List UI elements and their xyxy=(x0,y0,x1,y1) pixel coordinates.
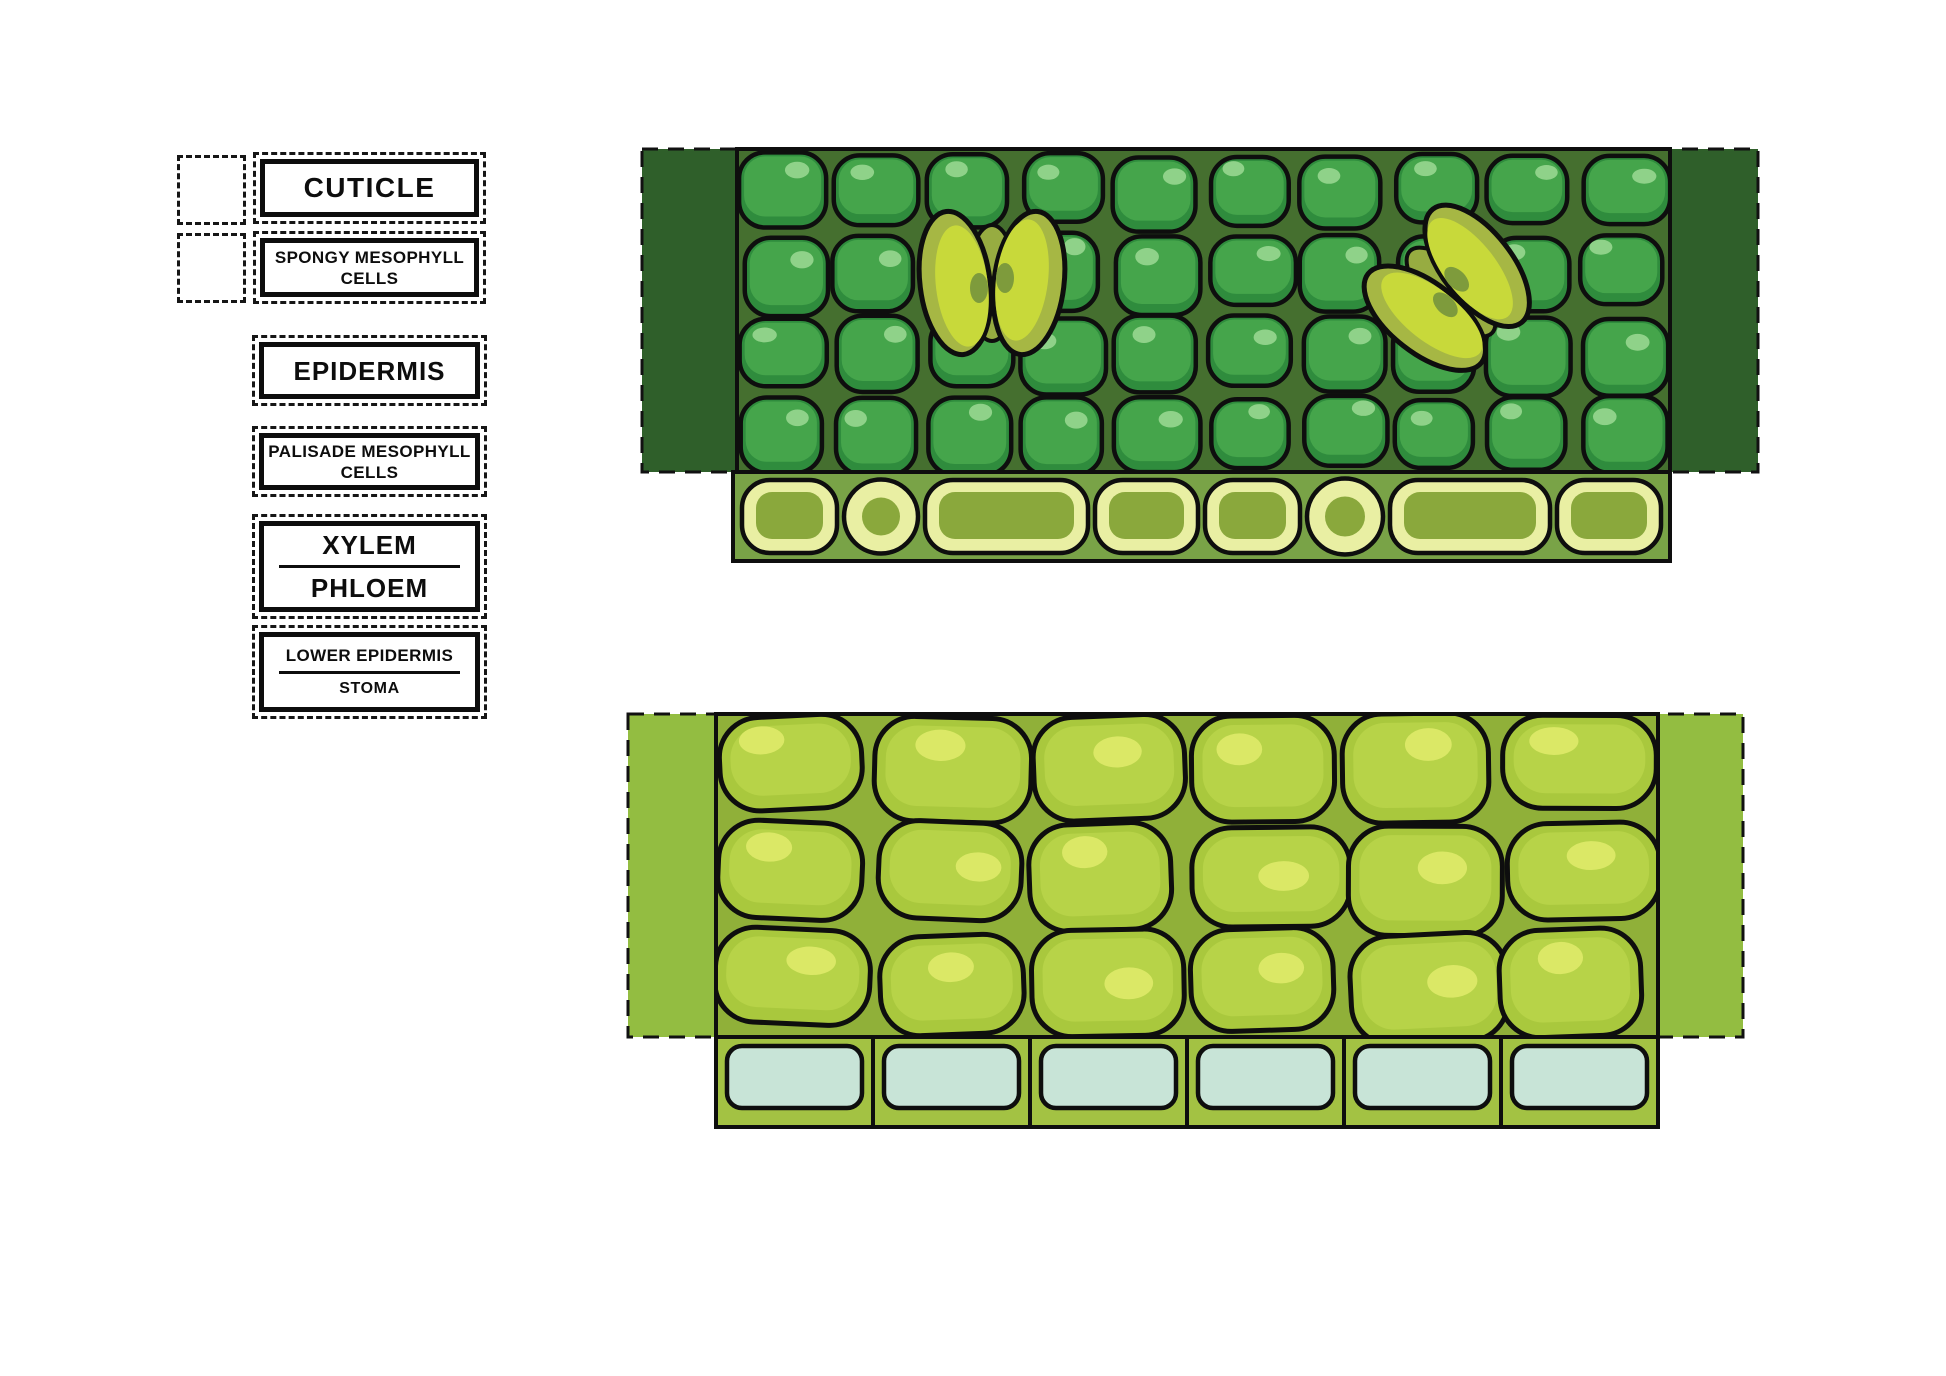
label-palisade-mesophyll: PALISADE MESOPHYLL CELLS xyxy=(252,426,487,497)
lower-epidermis-cell xyxy=(884,1046,1019,1108)
spongy-mesophyll-cell xyxy=(745,238,828,316)
palisade-mesophyll-cell xyxy=(1191,715,1335,823)
palisade-mesophyll-cell xyxy=(1031,928,1185,1037)
spongy-mesophyll-cell xyxy=(1583,396,1667,473)
label-spongy-mesophyll: SPONGY MESOPHYLL CELLS xyxy=(253,231,486,304)
palisade-mesophyll-cell xyxy=(716,818,864,922)
spongy-mesophyll-cell xyxy=(836,398,916,475)
spongy-mesophyll-cell xyxy=(1211,399,1288,468)
epidermis-cell xyxy=(742,480,837,553)
label-xylem-phloem-box: XYLEM PHLOEM xyxy=(259,521,480,612)
spongy-mesophyll-cell xyxy=(832,236,913,311)
palisade-mesophyll-cell xyxy=(1191,827,1350,928)
label-lower-epidermis-text: LOWER EPIDERMIS xyxy=(286,645,454,666)
spongy-mesophyll-cell xyxy=(1114,397,1201,472)
spongy-mesophyll-cell xyxy=(1299,157,1380,229)
spongy-mesophyll-cell xyxy=(1210,236,1296,304)
label-divider xyxy=(279,565,460,568)
spongy-mesophyll-cell xyxy=(1208,316,1291,386)
answer-tab-box-1 xyxy=(177,155,246,225)
label-spongy-line1: SPONGY MESOPHYLL xyxy=(275,247,464,268)
label-divider xyxy=(279,671,460,674)
spongy-mesophyll-cell xyxy=(1583,319,1668,396)
lower-epidermis-cell xyxy=(1512,1046,1647,1108)
palisade-mesophyll-cell xyxy=(877,819,1024,922)
label-lower-epidermis-stoma: LOWER EPIDERMIS STOMA xyxy=(252,625,487,719)
palisade-mesophyll-cell xyxy=(1027,821,1173,933)
label-epidermis-box: EPIDERMIS xyxy=(259,342,480,399)
lower-epidermis-cell xyxy=(1198,1046,1333,1108)
palisade-mesophyll-cell xyxy=(1189,926,1335,1032)
lower-leaf-cross-section-illustration xyxy=(626,712,1745,1129)
worksheet-page: CUTICLE SPONGY MESOPHYLL CELLS EPIDERMIS… xyxy=(0,0,1946,1376)
spongy-mesophyll-cell xyxy=(741,397,822,472)
epidermis-cell xyxy=(1205,480,1300,553)
palisade-mesophyll-cell xyxy=(1507,821,1662,920)
palisade-mesophyll-cell xyxy=(1348,826,1502,936)
label-cuticle-text: CUTICLE xyxy=(304,173,436,203)
epidermis-cell xyxy=(1307,479,1383,555)
answer-tab-box-2 xyxy=(177,233,246,303)
epidermis-cell xyxy=(1390,480,1550,553)
label-palisade-line1: PALISADE MESOPHYLL xyxy=(268,441,470,462)
spongy-mesophyll-cell xyxy=(1487,397,1565,470)
label-xylem-text: XYLEM xyxy=(322,530,417,560)
label-stoma-text: STOMA xyxy=(339,679,399,699)
palisade-mesophyll-cell xyxy=(873,715,1032,824)
label-epidermis: EPIDERMIS xyxy=(252,335,487,406)
spongy-mesophyll-cell xyxy=(837,316,918,392)
spongy-mesophyll-cell xyxy=(1021,397,1102,475)
label-epidermis-text: EPIDERMIS xyxy=(293,356,445,386)
lower-epidermis-cell xyxy=(727,1046,862,1108)
label-xylem-phloem: XYLEM PHLOEM xyxy=(252,514,487,619)
label-lower-epidermis-stoma-box: LOWER EPIDERMIS STOMA xyxy=(259,632,480,712)
label-cuticle: CUTICLE xyxy=(253,152,486,224)
spongy-mesophyll-cell xyxy=(1487,156,1568,223)
spongy-mesophyll-cell xyxy=(1395,400,1473,468)
palisade-mesophyll-cell xyxy=(1503,715,1657,808)
epidermis-cell xyxy=(1095,480,1198,553)
lower-epidermis-cell xyxy=(1355,1046,1490,1108)
palisade-mesophyll-cell xyxy=(713,926,872,1028)
stoma-guard-cells xyxy=(911,207,1072,358)
epidermis-cell xyxy=(925,480,1088,553)
label-spongy-mesophyll-box: SPONGY MESOPHYLL CELLS xyxy=(260,238,479,297)
spongy-mesophyll-cell xyxy=(740,319,827,386)
palisade-mesophyll-cell xyxy=(1342,712,1490,823)
spongy-mesophyll-cell xyxy=(834,155,919,225)
spongy-mesophyll-cell xyxy=(1304,396,1387,466)
spongy-mesophyll-cell xyxy=(1304,316,1386,391)
spongy-mesophyll-cell xyxy=(928,398,1011,475)
palisade-mesophyll-cell xyxy=(1348,931,1510,1047)
palisade-mesophyll-cell xyxy=(717,712,864,812)
epidermis-cell xyxy=(844,480,918,554)
spongy-mesophyll-cell xyxy=(1116,236,1200,315)
lower-epidermis-cell xyxy=(1041,1046,1176,1108)
label-cuticle-box: CUTICLE xyxy=(260,159,479,217)
upper-leaf-cross-section-illustration xyxy=(640,147,1762,565)
palisade-mesophyll-cell xyxy=(878,933,1025,1037)
epidermis-cell xyxy=(1557,480,1661,553)
spongy-mesophyll-cell xyxy=(1486,318,1571,396)
palisade-mesophyll-cell xyxy=(1498,927,1643,1039)
spongy-mesophyll-cell xyxy=(1113,157,1196,231)
spongy-mesophyll-cell xyxy=(1114,316,1196,393)
label-palisade-line2: CELLS xyxy=(341,462,399,483)
spongy-mesophyll-cell xyxy=(1211,157,1289,226)
spongy-mesophyll-cell xyxy=(1584,156,1670,224)
spongy-mesophyll-cell xyxy=(1580,235,1662,304)
palisade-mesophyll-cell xyxy=(1032,713,1187,823)
spongy-mesophyll-cell xyxy=(739,152,826,227)
label-palisade-mesophyll-box: PALISADE MESOPHYLL CELLS xyxy=(259,433,480,490)
label-spongy-line2: CELLS xyxy=(341,268,399,289)
label-phloem-text: PHLOEM xyxy=(311,573,428,603)
